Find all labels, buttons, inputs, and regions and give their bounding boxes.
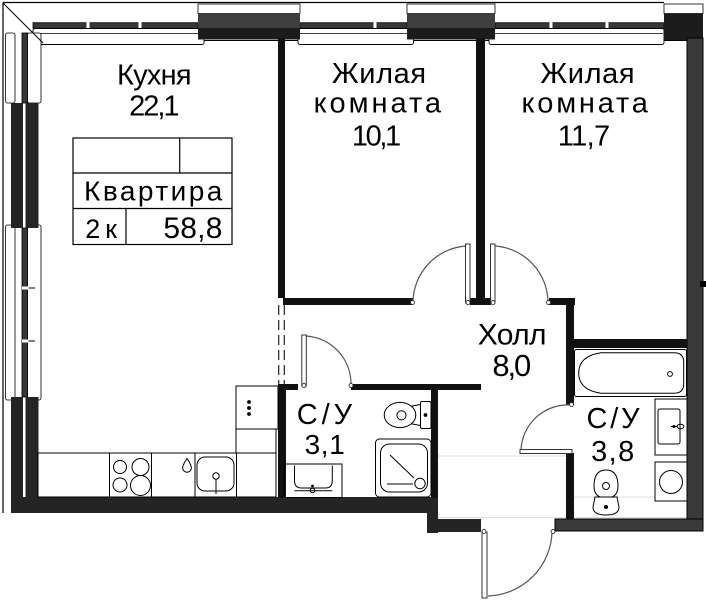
svg-text:Кухня: Кухня	[117, 60, 192, 92]
svg-text:Жилая: Жилая	[332, 58, 426, 90]
svg-text:10,1: 10,1	[352, 121, 401, 153]
svg-text:С/У: С/У	[586, 403, 640, 435]
svg-text:58,8: 58,8	[163, 212, 222, 245]
svg-text:3,8: 3,8	[591, 436, 634, 468]
svg-text:22,1: 22,1	[129, 91, 179, 123]
svg-text:8,0: 8,0	[492, 348, 531, 383]
svg-text:Холл: Холл	[478, 318, 547, 351]
svg-text:С/У: С/У	[297, 399, 353, 431]
svg-text:3,1: 3,1	[305, 429, 345, 460]
svg-text:11,7: 11,7	[558, 121, 610, 153]
svg-text:Жилая: Жилая	[540, 58, 634, 90]
